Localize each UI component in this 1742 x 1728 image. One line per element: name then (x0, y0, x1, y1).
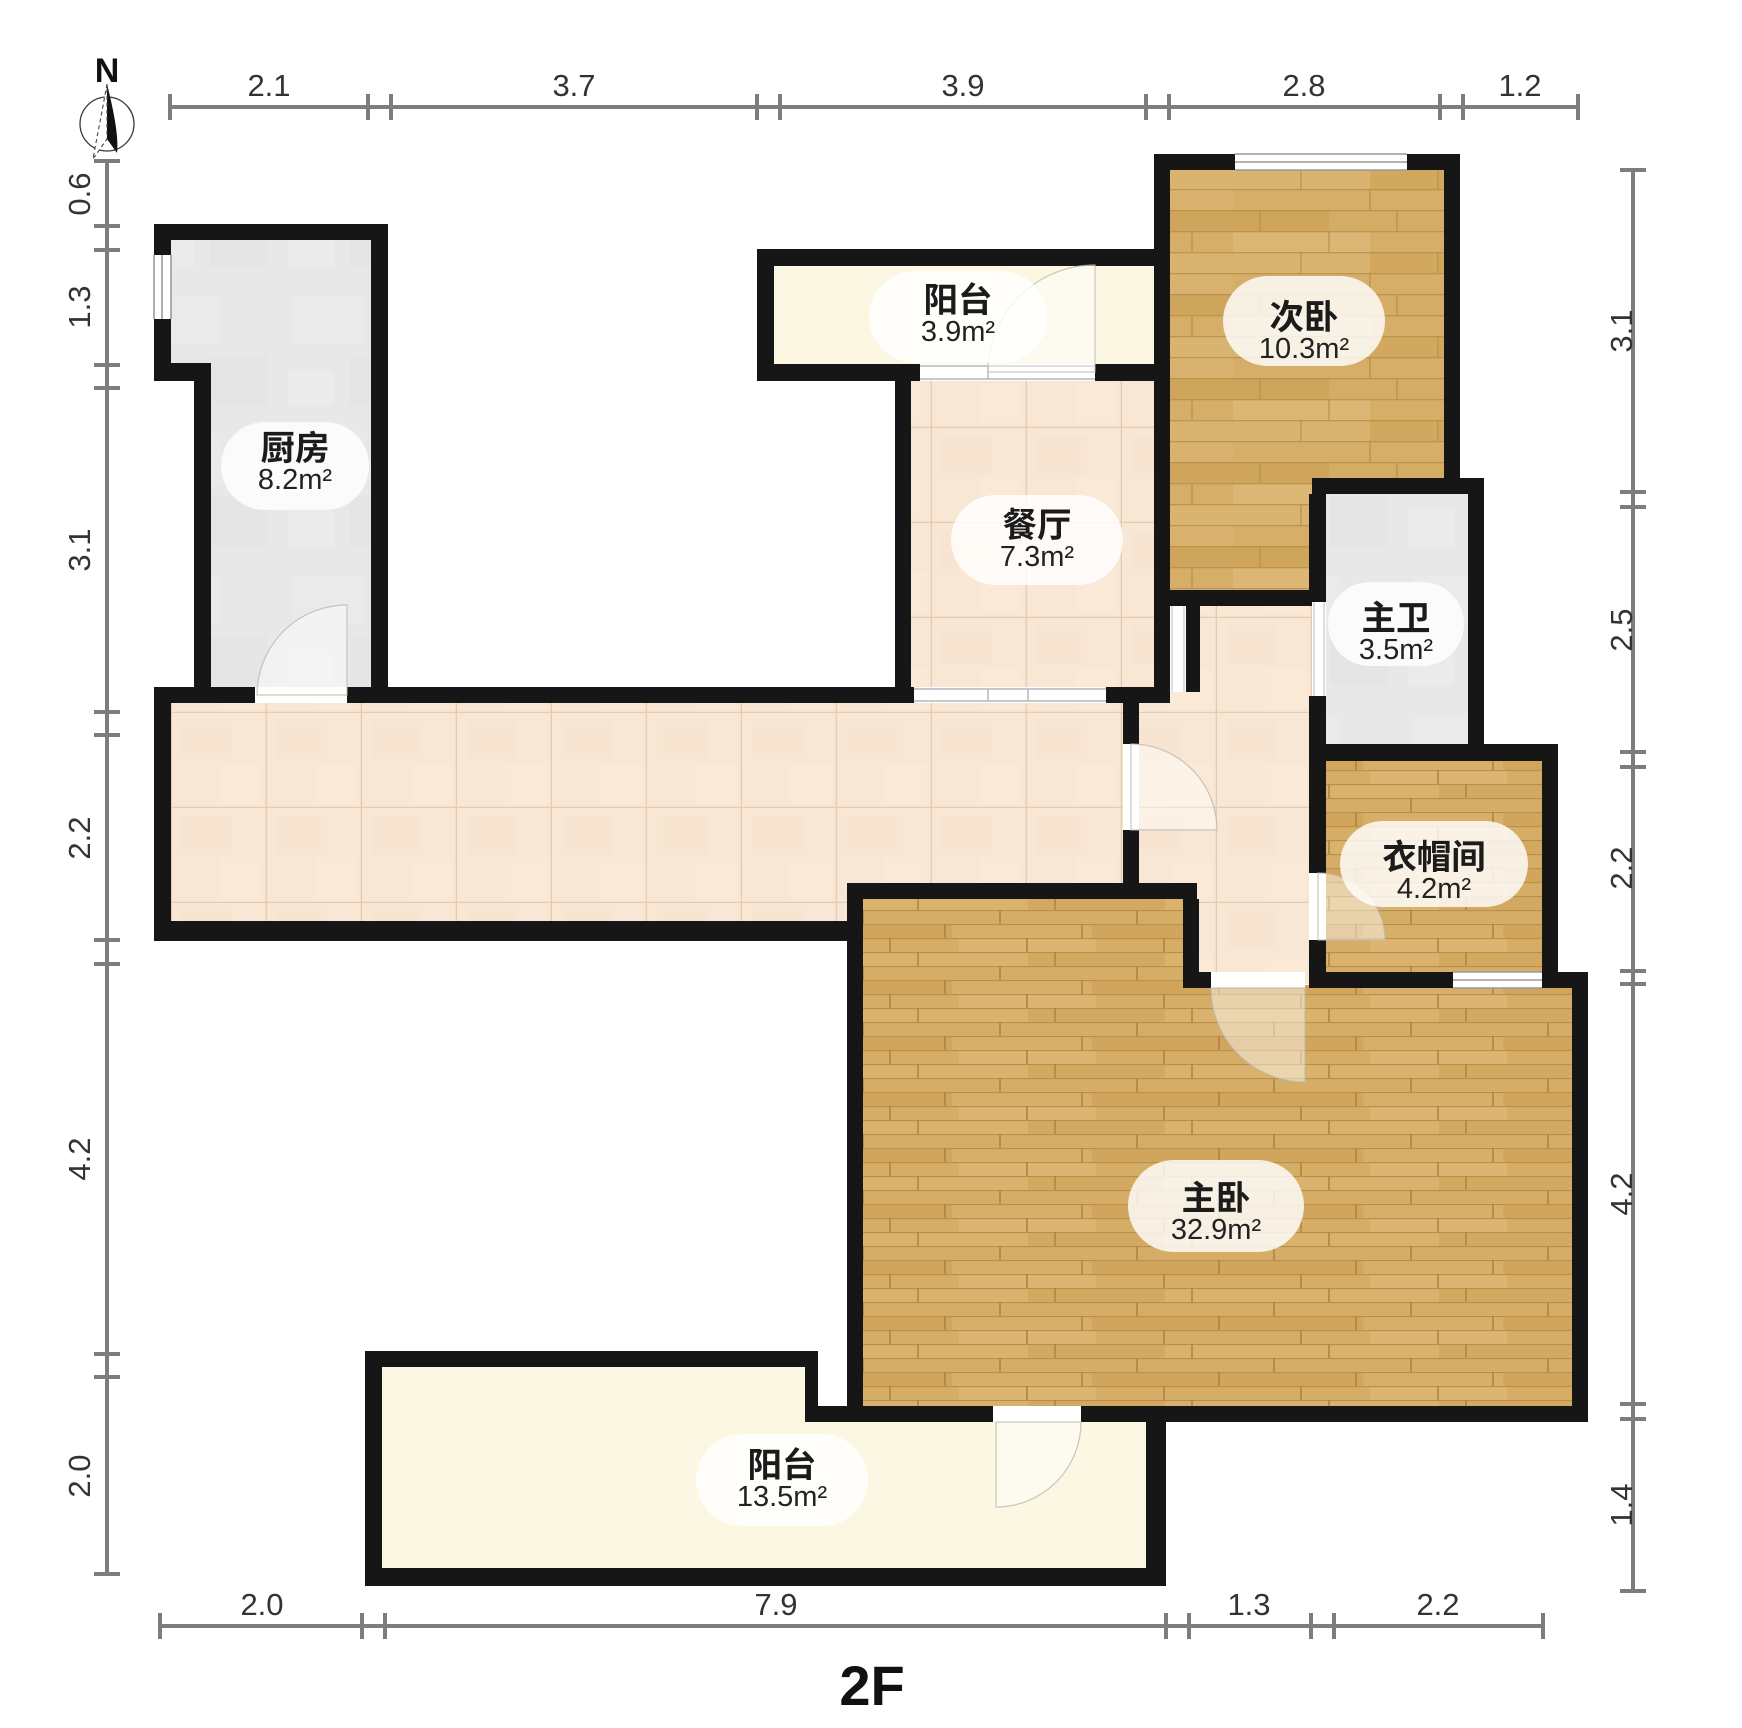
svg-text:3.9: 3.9 (941, 68, 984, 103)
svg-text:3.1: 3.1 (62, 528, 97, 571)
svg-text:2.2: 2.2 (1604, 846, 1639, 889)
svg-text:3.7: 3.7 (552, 68, 595, 103)
svg-text:3.9m²: 3.9m² (921, 316, 995, 348)
svg-text:3.5m²: 3.5m² (1359, 634, 1433, 666)
svg-text:2.2: 2.2 (1416, 1587, 1459, 1622)
svg-text:7.9: 7.9 (754, 1587, 797, 1622)
svg-text:1.2: 1.2 (1498, 68, 1541, 103)
svg-text:8.2m²: 8.2m² (258, 464, 332, 496)
svg-text:32.9m²: 32.9m² (1171, 1214, 1262, 1246)
svg-text:13.5m²: 13.5m² (737, 1481, 828, 1513)
svg-text:4.2: 4.2 (62, 1137, 97, 1180)
svg-text:2.2: 2.2 (62, 816, 97, 859)
svg-text:2.8: 2.8 (1282, 68, 1325, 103)
svg-text:4.2m²: 4.2m² (1397, 873, 1471, 905)
svg-text:2F: 2F (839, 1654, 904, 1717)
svg-text:10.3m²: 10.3m² (1259, 333, 1350, 365)
svg-text:3.1: 3.1 (1604, 309, 1639, 352)
svg-text:2.0: 2.0 (240, 1587, 283, 1622)
svg-text:2.0: 2.0 (62, 1454, 97, 1497)
svg-text:4.2: 4.2 (1604, 1172, 1639, 1215)
svg-text:7.3m²: 7.3m² (1000, 541, 1074, 573)
svg-text:0.6: 0.6 (62, 172, 97, 215)
svg-text:1.4: 1.4 (1604, 1483, 1639, 1526)
svg-text:2.5: 2.5 (1604, 608, 1639, 651)
svg-text:1.3: 1.3 (1227, 1587, 1270, 1622)
svg-text:1.3: 1.3 (62, 285, 97, 328)
svg-text:2.1: 2.1 (247, 68, 290, 103)
